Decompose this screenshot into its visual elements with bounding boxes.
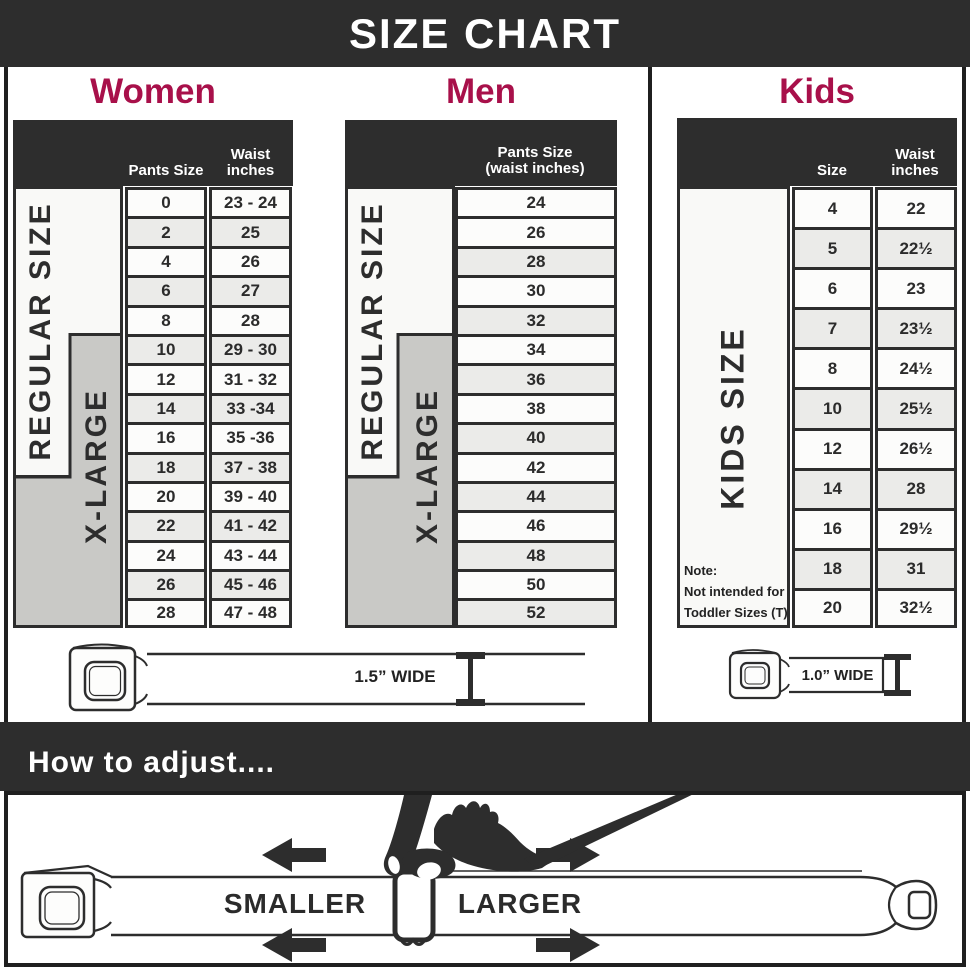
title-banner: SIZE CHART: [0, 0, 970, 67]
size-cell: 32: [455, 305, 617, 334]
loose-strap-diagonal: [524, 795, 704, 869]
kids-belt-width-label: 1.0” WIDE: [790, 666, 885, 686]
smaller-lower-arrow-icon: [262, 928, 326, 962]
size-cell: 26: [125, 569, 207, 598]
size-cell: 7: [792, 307, 873, 347]
smaller-label: SMALLER: [210, 889, 380, 919]
women-col-pants-size-header: Pants Size: [125, 163, 207, 179]
size-cell: 10: [792, 387, 873, 427]
size-cell: 28: [125, 598, 207, 627]
women-regular-size-label: REGULAR SIZE: [24, 201, 58, 460]
size-cell: 46: [455, 510, 617, 539]
how-to-adjust-heading: How to adjust....: [28, 746, 275, 780]
size-cell: 20: [125, 481, 207, 510]
kids-section-divider: [648, 67, 652, 723]
women-pants-size-column: 0246810121416182022242628: [125, 187, 207, 628]
size-cell: 6: [125, 275, 207, 304]
size-cell: 47 - 48: [209, 598, 292, 627]
men-table-header: Pants Size (waist inches): [345, 120, 617, 186]
size-cell: 24: [455, 187, 617, 216]
kids-col-waist-header: Waist inches: [875, 147, 955, 179]
kids-note: Note: Not intended for Toddler Sizes (T): [684, 560, 788, 623]
size-cell: 39 - 40: [209, 481, 292, 510]
kids-note-line2: Not intended for: [684, 581, 788, 602]
seatbelt-buckle-icon: [22, 866, 112, 937]
size-cell: 32½: [875, 588, 957, 628]
size-cell: 14: [125, 393, 207, 422]
kids-size-label: KIDS SIZE: [715, 326, 752, 509]
adjustment-diagram: [8, 795, 962, 963]
kids-size-column: 45678101214161820: [792, 187, 873, 628]
size-cell: 0: [125, 187, 207, 216]
size-cell: 30: [455, 275, 617, 304]
kids-waist-header-line1: Waist: [875, 147, 955, 163]
size-cell: 31 - 32: [209, 363, 292, 392]
size-cell: 28: [209, 305, 292, 334]
size-cell: 31: [875, 548, 957, 588]
size-cell: 35 -36: [209, 422, 292, 451]
men-header-line2: (waist inches): [453, 161, 617, 177]
kids-waist-column: 2222½2323½24½25½26½2829½3132½: [875, 187, 957, 628]
adjustment-diagram-panel: [4, 791, 966, 967]
kids-col-size-header: Size: [792, 163, 872, 179]
size-cell: 43 - 44: [209, 540, 292, 569]
belt-tip: [860, 877, 936, 935]
size-cell: 8: [792, 347, 873, 387]
size-cell: 25: [209, 216, 292, 245]
women-table-header: Pants Size Waist inches: [13, 120, 293, 186]
size-cell: 23 - 24: [209, 187, 292, 216]
women-section-heading: Women: [13, 70, 293, 114]
size-cell: 18: [792, 548, 873, 588]
size-cell: 25½: [875, 387, 957, 427]
women-waist-column: 23 - 242526272829 - 3031 - 3233 -3435 -3…: [209, 187, 292, 628]
size-cell: 22½: [875, 227, 957, 267]
women-waist-header-line1: Waist: [209, 147, 292, 163]
size-cell: 37 - 38: [209, 452, 292, 481]
page-title: SIZE CHART: [349, 10, 621, 58]
size-cell: 12: [792, 428, 873, 468]
width-dimension-marker: [884, 654, 911, 696]
size-cell: 5: [792, 227, 873, 267]
size-cell: 26: [209, 246, 292, 275]
larger-lower-arrow-icon: [536, 928, 600, 962]
size-cell: 45 - 46: [209, 569, 292, 598]
larger-label: LARGER: [442, 889, 598, 919]
women-col-waist-header: Waist inches: [209, 147, 292, 179]
size-cell: 14: [792, 468, 873, 508]
size-cell: 22: [875, 187, 957, 227]
size-cell: 24: [125, 540, 207, 569]
size-cell: 4: [792, 187, 873, 227]
size-cell: 41 - 42: [209, 510, 292, 539]
hand-icon: [384, 795, 704, 882]
kids-table-header: Size Waist inches: [677, 118, 957, 186]
size-cell: 12: [125, 363, 207, 392]
kids-section-heading: Kids: [677, 70, 957, 114]
size-cell: 16: [125, 422, 207, 451]
frame-right-border: [962, 67, 966, 723]
men-pants-size-column: 242628303234363840424446485052: [455, 187, 617, 628]
kids-note-line1: Note:: [684, 560, 788, 581]
size-chart-infographic: SIZE CHART Women Men Kids Pants Size Wai…: [0, 0, 970, 971]
size-cell: 23½: [875, 307, 957, 347]
size-cell: 50: [455, 569, 617, 598]
size-cell: 6: [792, 267, 873, 307]
size-cell: 29 - 30: [209, 334, 292, 363]
width-dimension-marker: [456, 652, 485, 706]
size-cell: 52: [455, 598, 617, 627]
size-cell: 10: [125, 334, 207, 363]
size-cell: 26½: [875, 428, 957, 468]
size-cell: 34: [455, 334, 617, 363]
men-header-line1: Pants Size: [453, 145, 617, 161]
size-cell: 20: [792, 588, 873, 628]
size-cell: 48: [455, 540, 617, 569]
size-cell: 4: [125, 246, 207, 275]
men-regular-size-label: REGULAR SIZE: [356, 201, 390, 460]
how-to-adjust-bar: How to adjust....: [0, 722, 970, 791]
size-cell: 22: [125, 510, 207, 539]
frame-left-border: [4, 67, 8, 723]
size-cell: 8: [125, 305, 207, 334]
seatbelt-buckle-icon: [730, 650, 789, 698]
size-cell: 2: [125, 216, 207, 245]
size-cell: 23: [875, 267, 957, 307]
adult-belt-width-label: 1.5” WIDE: [345, 666, 445, 688]
size-cell: 28: [455, 246, 617, 275]
men-section-heading: Men: [345, 70, 617, 114]
men-col-header: Pants Size (waist inches): [453, 145, 617, 177]
size-cell: 36: [455, 363, 617, 392]
men-xlarge-label: X-LARGE: [411, 388, 445, 544]
size-cell: 42: [455, 452, 617, 481]
women-waist-header-line2: inches: [209, 163, 292, 179]
size-cell: 33 -34: [209, 393, 292, 422]
kids-waist-header-line2: inches: [875, 163, 955, 179]
size-cell: 27: [209, 275, 292, 304]
women-xlarge-label: X-LARGE: [80, 388, 114, 544]
size-cell: 26: [455, 216, 617, 245]
size-cell: 24½: [875, 347, 957, 387]
size-cell: 38: [455, 393, 617, 422]
smaller-upper-arrow-icon: [262, 838, 326, 872]
kids-note-line3: Toddler Sizes (T): [684, 602, 788, 623]
size-cell: 28: [875, 468, 957, 508]
size-cell: 44: [455, 481, 617, 510]
size-cell: 29½: [875, 508, 957, 548]
size-cell: 40: [455, 422, 617, 451]
adult-belt-illustration: [13, 640, 633, 720]
size-cell: 18: [125, 452, 207, 481]
belt-adjuster-slider: [395, 872, 433, 940]
seatbelt-buckle-icon: [70, 645, 147, 711]
size-cell: 16: [792, 508, 873, 548]
